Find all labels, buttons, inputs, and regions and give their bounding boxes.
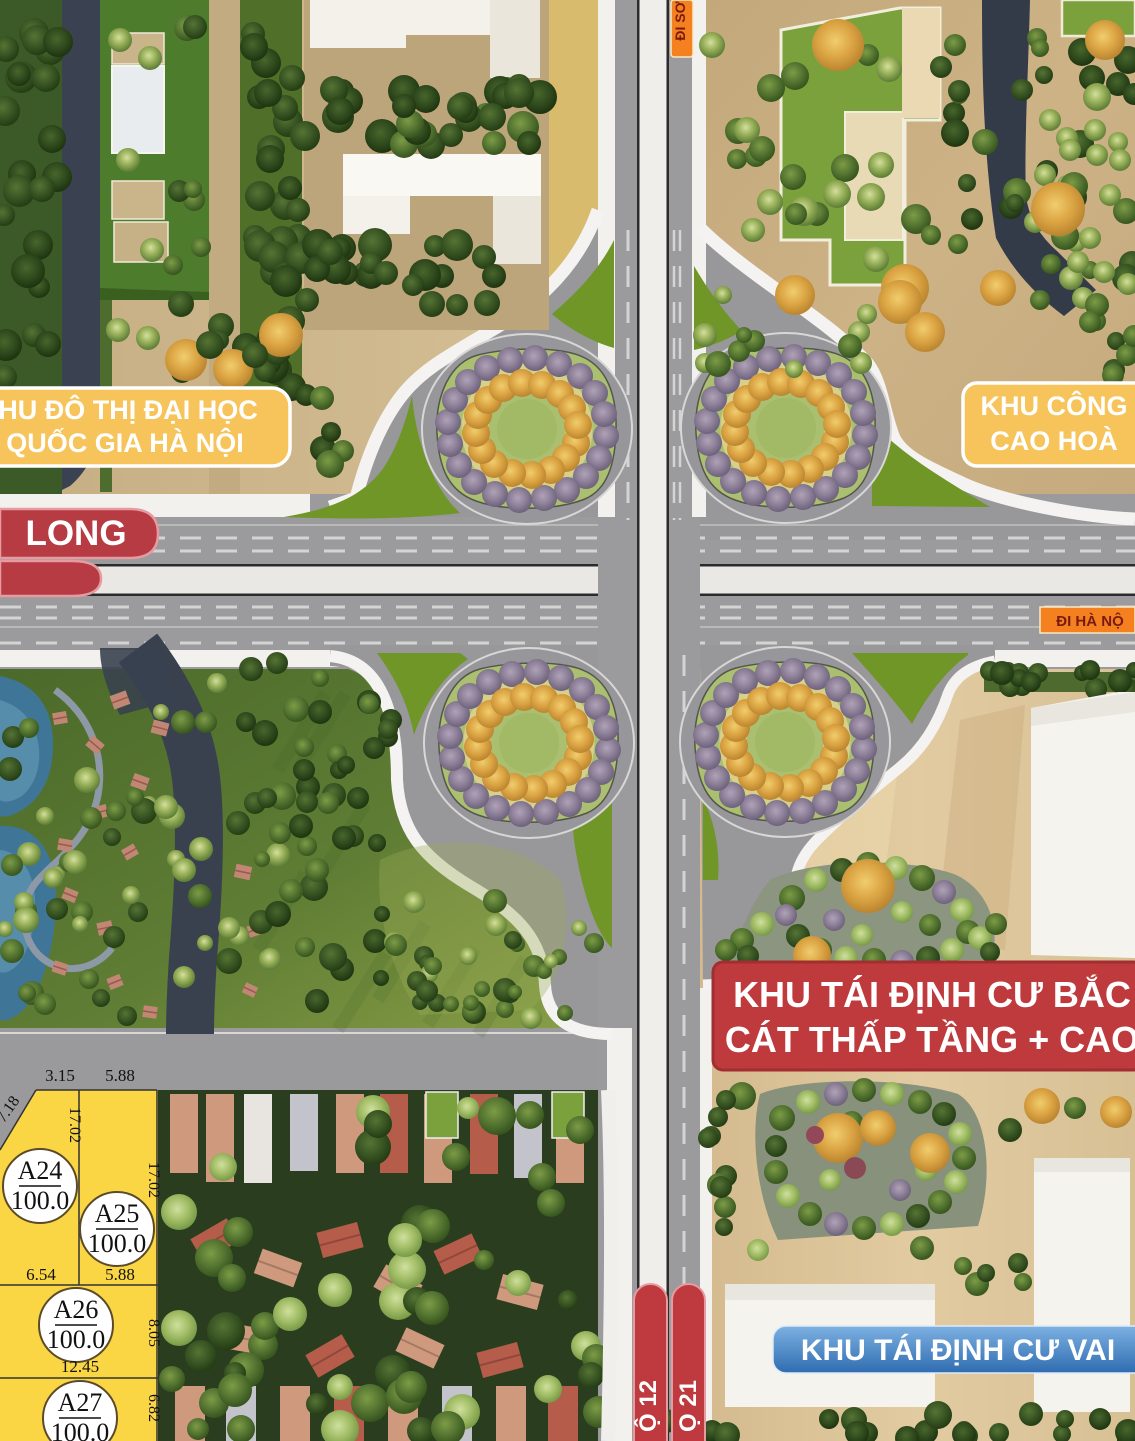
svg-text:CÁT THẤP TẦNG + CAO T: CÁT THẤP TẦNG + CAO T: [725, 1019, 1135, 1060]
svg-text:12.45: 12.45: [61, 1357, 99, 1376]
svg-text:A25: A25: [95, 1199, 140, 1228]
svg-text:100.0: 100.0: [88, 1229, 147, 1258]
svg-text:100.0: 100.0: [11, 1186, 70, 1215]
svg-text:KHU TÁI ĐỊNH CƯ VAI: KHU TÁI ĐỊNH CƯ VAI: [801, 1333, 1115, 1367]
svg-text:ĐI HÀ NỘ: ĐI HÀ NỘ: [1056, 612, 1124, 630]
svg-text:Ọ 21: Ọ 21: [675, 1380, 702, 1432]
svg-text:17.02: 17.02: [145, 1162, 162, 1198]
svg-text:HU ĐÔ THỊ ĐẠI HỌC: HU ĐÔ THỊ ĐẠI HỌC: [0, 394, 258, 425]
svg-text:QUỐC GIA HÀ NỘI: QUỐC GIA HÀ NỘI: [6, 426, 244, 458]
svg-text:A27: A27: [58, 1388, 103, 1417]
svg-text:5.88: 5.88: [105, 1066, 135, 1085]
svg-text:KHU TÁI ĐỊNH CƯ BẮC: KHU TÁI ĐỊNH CƯ BẮC: [733, 973, 1131, 1015]
svg-text:ĐI SƠ: ĐI SƠ: [672, 1, 688, 40]
svg-text:100.0: 100.0: [47, 1325, 106, 1354]
svg-text:KHU CÔNG: KHU CÔNG: [981, 390, 1128, 421]
svg-text:A26: A26: [54, 1295, 99, 1324]
svg-text:17.02: 17.02: [66, 1107, 83, 1143]
svg-text:CAO HOÀ: CAO HOÀ: [990, 425, 1118, 456]
svg-text:8.05: 8.05: [145, 1319, 162, 1347]
svg-text:A24: A24: [18, 1156, 63, 1185]
svg-text:6.82: 6.82: [145, 1394, 162, 1422]
svg-text:100.0: 100.0: [51, 1418, 110, 1441]
svg-text:Ộ 12: Ộ 12: [634, 1380, 662, 1432]
svg-text:LONG: LONG: [25, 514, 126, 553]
svg-text:3.15: 3.15: [45, 1066, 75, 1085]
svg-text:5.88: 5.88: [105, 1265, 135, 1284]
svg-text:6.54: 6.54: [26, 1265, 56, 1284]
